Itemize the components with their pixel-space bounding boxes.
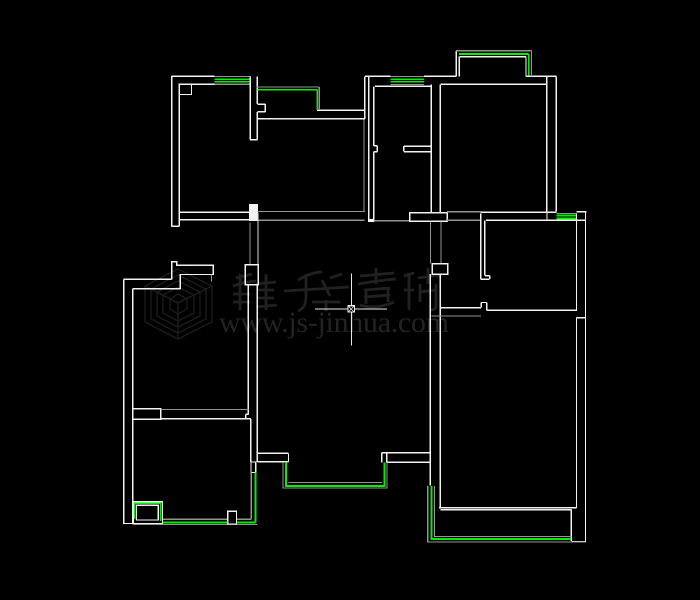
svg-text:www.js-jinhua.com: www.js-jinhua.com	[219, 306, 449, 339]
